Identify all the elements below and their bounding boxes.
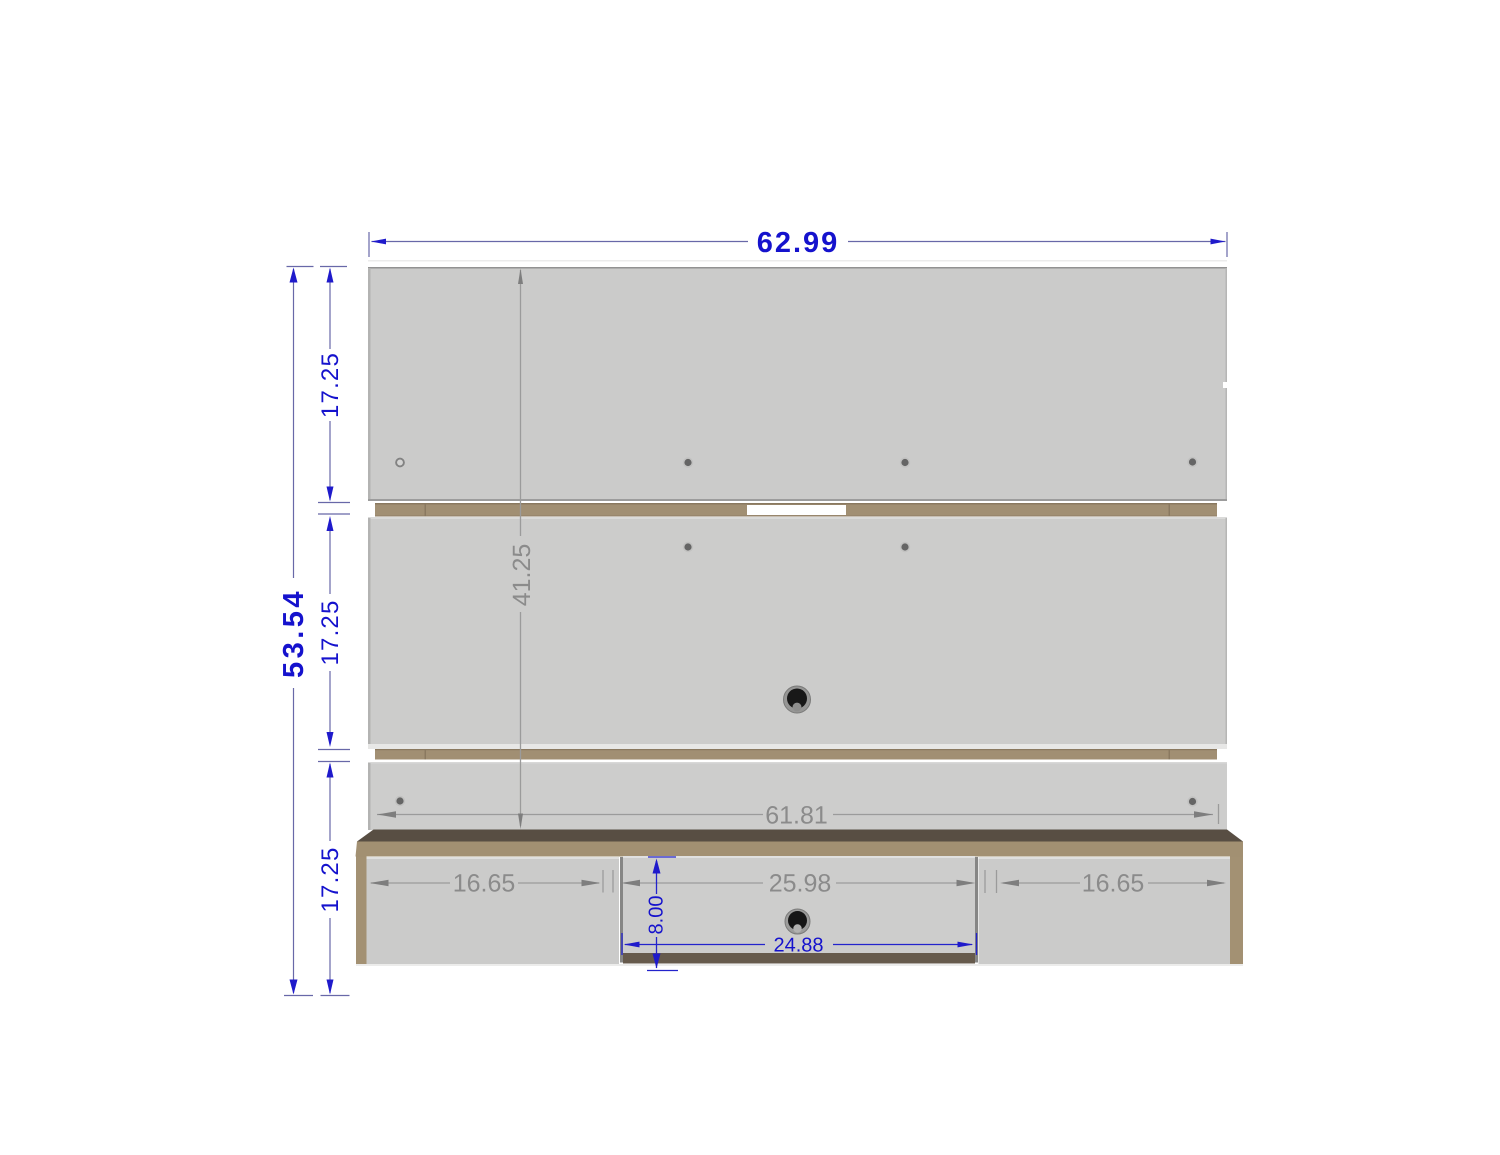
- svg-text:16.65: 16.65: [453, 870, 516, 898]
- svg-text:41.25: 41.25: [508, 544, 536, 607]
- svg-text:8.00: 8.00: [646, 896, 668, 935]
- svg-text:24.88: 24.88: [773, 935, 823, 957]
- svg-text:17.25: 17.25: [317, 352, 344, 418]
- svg-text:16.65: 16.65: [1082, 870, 1145, 898]
- svg-text:25.98: 25.98: [769, 870, 832, 898]
- svg-text:61.81: 61.81: [765, 802, 828, 830]
- svg-text:53.54: 53.54: [278, 588, 310, 678]
- svg-text:17.25: 17.25: [317, 599, 344, 665]
- svg-text:17.25: 17.25: [317, 846, 344, 912]
- svg-text:62.99: 62.99: [757, 227, 840, 259]
